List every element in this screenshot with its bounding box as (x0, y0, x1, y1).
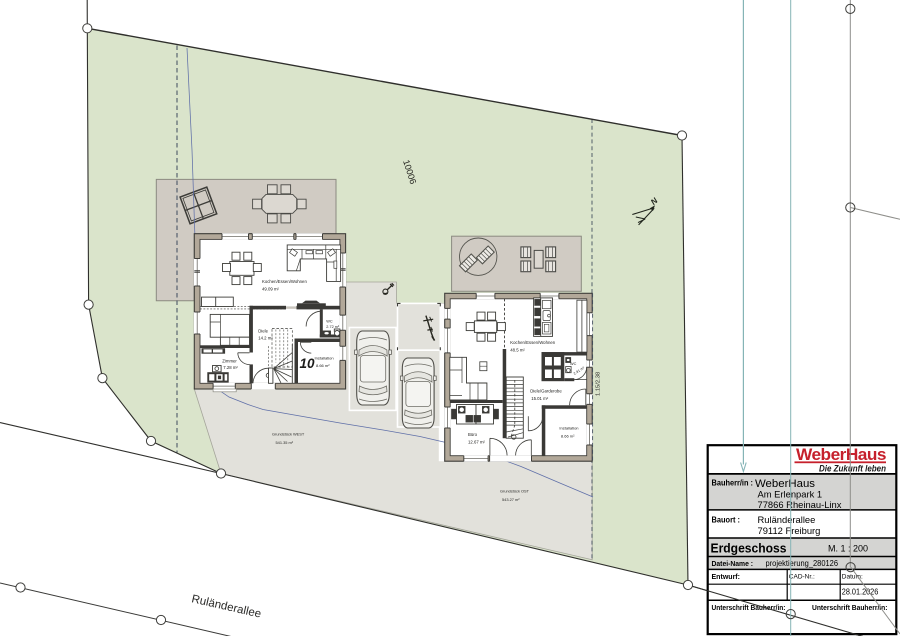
svg-text:49.09 m²: 49.09 m² (262, 287, 280, 292)
svg-text:Installation: Installation (559, 426, 578, 431)
svg-text:Bauort :: Bauort : (712, 516, 741, 525)
svg-text:77866 Rheinau-Linx: 77866 Rheinau-Linx (758, 499, 842, 510)
svg-text:Zimmer: Zimmer (222, 359, 237, 364)
svg-text:Diele/Garderobe: Diele/Garderobe (530, 389, 562, 394)
svg-text:28.01.2026: 28.01.2026 (842, 588, 879, 597)
svg-text:projektierung_280126: projektierung_280126 (766, 559, 839, 568)
svg-text:79112 Freiburg: 79112 Freiburg (758, 525, 821, 536)
svg-text:543.27 m²: 543.27 m² (502, 497, 520, 502)
svg-text:12.67 m²: 12.67 m² (468, 440, 486, 445)
svg-text:Grundstück OST: Grundstück OST (500, 489, 530, 494)
svg-text:Die Zukunft leben: Die Zukunft leben (819, 463, 886, 473)
svg-text:Kochen/Essen/Wohnen: Kochen/Essen/Wohnen (510, 340, 555, 345)
svg-text:WeberHaus: WeberHaus (796, 445, 886, 464)
svg-text:Diele: Diele (258, 329, 268, 334)
svg-text:Bauherr/in :: Bauherr/in : (712, 479, 754, 488)
svg-text:15.01 m²: 15.01 m² (531, 396, 549, 401)
svg-text:541.35 m²: 541.35 m² (276, 440, 294, 445)
svg-text:Entwurf:: Entwurf: (712, 574, 741, 581)
svg-text:Unterschrift Bauherr/in:: Unterschrift Bauherr/in: (812, 603, 888, 612)
svg-text:8.66 m²: 8.66 m² (561, 434, 575, 439)
svg-text:M. 1 : 200: M. 1 : 200 (828, 544, 868, 554)
svg-text:Grundstück WEST: Grundstück WEST (272, 432, 305, 437)
svg-text:Erdgeschoss: Erdgeschoss (711, 541, 787, 555)
svg-text:Büro: Büro (468, 432, 478, 437)
svg-text:Installation: Installation (315, 356, 334, 361)
svg-text:Ruländerallee: Ruländerallee (758, 514, 816, 525)
svg-text:Datei-Name :: Datei-Name : (712, 559, 754, 568)
svg-text:10: 10 (300, 356, 316, 371)
svg-text:2.72 m²: 2.72 m² (326, 325, 340, 329)
svg-text:14.2 m²: 14.2 m² (258, 336, 273, 341)
svg-text:8.66 m²: 8.66 m² (316, 363, 330, 368)
svg-text:Kochen/Essen/Wohnen: Kochen/Essen/Wohnen (262, 279, 307, 284)
svg-text:CAD-Nr.:: CAD-Nr.: (789, 573, 815, 580)
svg-text:Am Erlenpark 1: Am Erlenpark 1 (758, 489, 823, 500)
svg-text:WC: WC (326, 320, 333, 324)
svg-text:7.28 m²: 7.28 m² (223, 365, 238, 370)
svg-text:1.15/2.38: 1.15/2.38 (596, 372, 602, 396)
svg-text:48.5 m²: 48.5 m² (510, 348, 525, 353)
svg-text:WC: WC (570, 362, 577, 366)
